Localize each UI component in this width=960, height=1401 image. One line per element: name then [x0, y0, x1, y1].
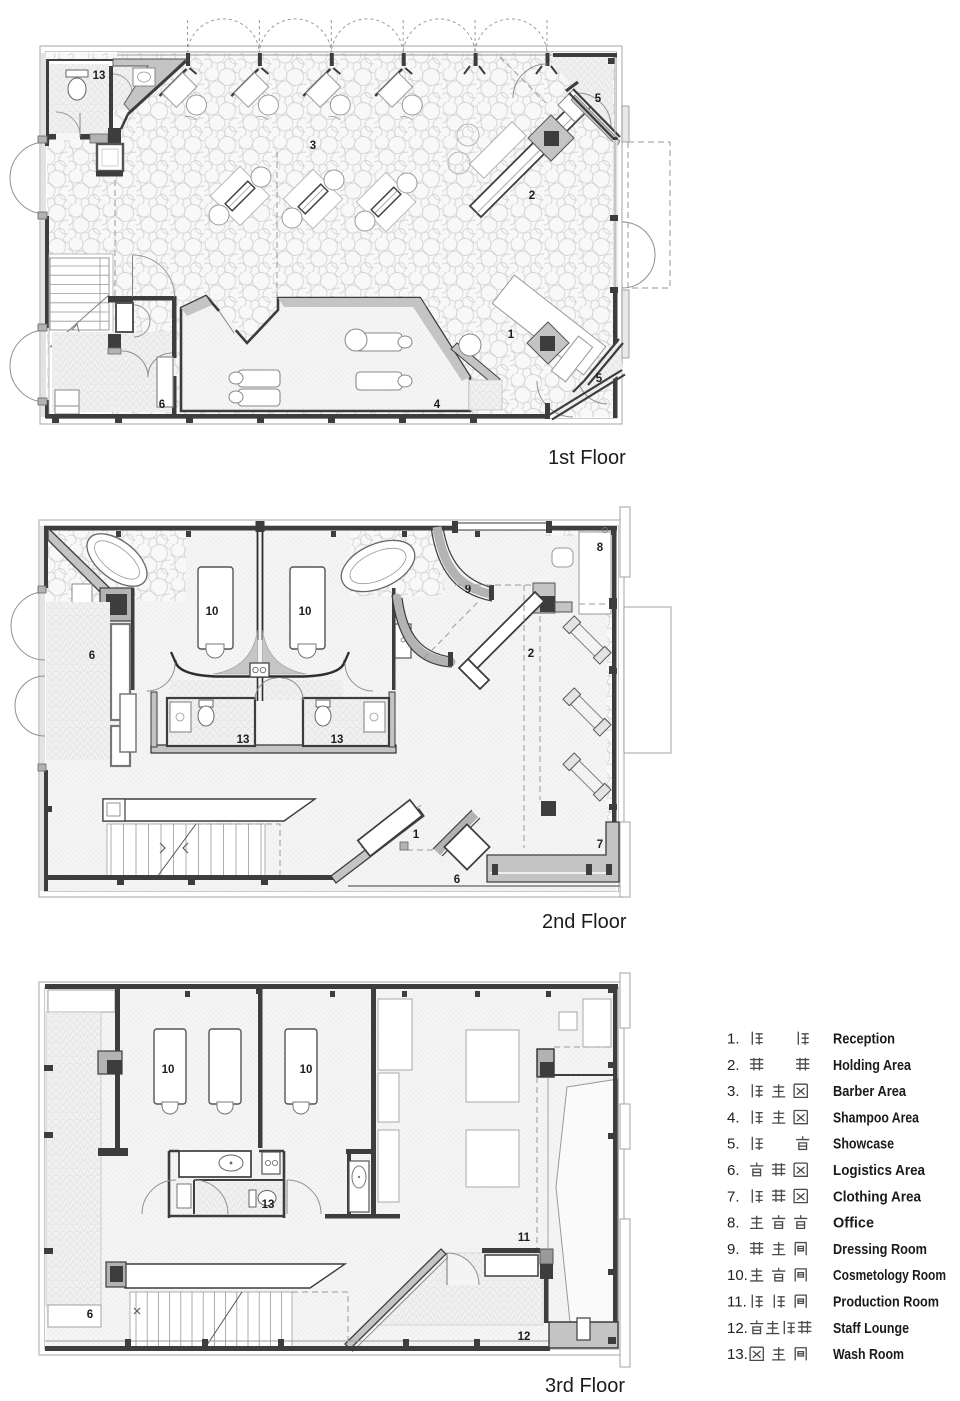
svg-text:Holding Area: Holding Area [833, 1058, 912, 1074]
svg-text:Clothing Area: Clothing Area [833, 1189, 922, 1205]
svg-text:10: 10 [162, 1064, 175, 1076]
svg-text:1: 1 [508, 329, 515, 341]
svg-text:Office: Office [833, 1216, 874, 1232]
svg-text:Reception: Reception [833, 1032, 895, 1048]
svg-text:4: 4 [434, 399, 441, 411]
svg-text:6: 6 [454, 874, 460, 886]
svg-text:1: 1 [413, 829, 420, 841]
svg-text:13: 13 [331, 734, 344, 746]
svg-text:6: 6 [87, 1309, 93, 1321]
svg-text:Cosmetology Room: Cosmetology Room [833, 1268, 946, 1284]
svg-text:Wash Room: Wash Room [833, 1347, 904, 1363]
svg-text:7: 7 [597, 839, 603, 851]
svg-text:1st Floor: 1st Floor [548, 447, 626, 469]
svg-text:8.: 8. [727, 1215, 740, 1232]
svg-text:9: 9 [465, 584, 471, 596]
svg-text:Dressing Room: Dressing Room [833, 1242, 927, 1258]
svg-text:6: 6 [89, 650, 95, 662]
svg-text:2: 2 [528, 648, 534, 660]
svg-text:10: 10 [300, 1064, 313, 1076]
svg-text:3rd Floor: 3rd Floor [545, 1375, 625, 1396]
svg-text:5.: 5. [727, 1136, 740, 1153]
svg-text:3: 3 [310, 140, 316, 152]
svg-text:Shampoo Area: Shampoo Area [833, 1110, 920, 1126]
svg-text:Barber Area: Barber Area [833, 1084, 907, 1100]
svg-text:2: 2 [529, 190, 535, 202]
svg-text:Showcase: Showcase [833, 1137, 894, 1153]
svg-text:Staff Lounge: Staff Lounge [833, 1321, 909, 1337]
svg-text:11.: 11. [727, 1294, 747, 1311]
svg-text:Logistics Area: Logistics Area [833, 1163, 926, 1179]
svg-text:13: 13 [262, 1199, 275, 1211]
svg-text:10: 10 [206, 606, 219, 618]
svg-text:10.: 10. [727, 1267, 748, 1284]
svg-text:11: 11 [518, 1232, 531, 1244]
svg-text:6.: 6. [727, 1162, 740, 1179]
svg-text:2nd Floor: 2nd Floor [542, 911, 627, 933]
svg-text:12.: 12. [727, 1320, 748, 1337]
svg-text:7.: 7. [727, 1188, 740, 1205]
svg-text:6: 6 [159, 399, 165, 411]
svg-text:5: 5 [595, 93, 602, 105]
svg-text:1.: 1. [727, 1031, 740, 1048]
svg-text:9.: 9. [727, 1241, 740, 1258]
svg-text:8: 8 [597, 542, 604, 554]
svg-text:10: 10 [299, 606, 312, 618]
svg-text:13.: 13. [727, 1346, 748, 1363]
svg-text:3.: 3. [727, 1083, 740, 1100]
svg-text:13: 13 [237, 734, 250, 746]
svg-text:12: 12 [518, 1331, 531, 1343]
svg-text:2.: 2. [727, 1057, 740, 1074]
svg-text:13: 13 [93, 70, 106, 82]
svg-text:Production Room: Production Room [833, 1295, 939, 1311]
svg-text:4.: 4. [727, 1109, 740, 1126]
